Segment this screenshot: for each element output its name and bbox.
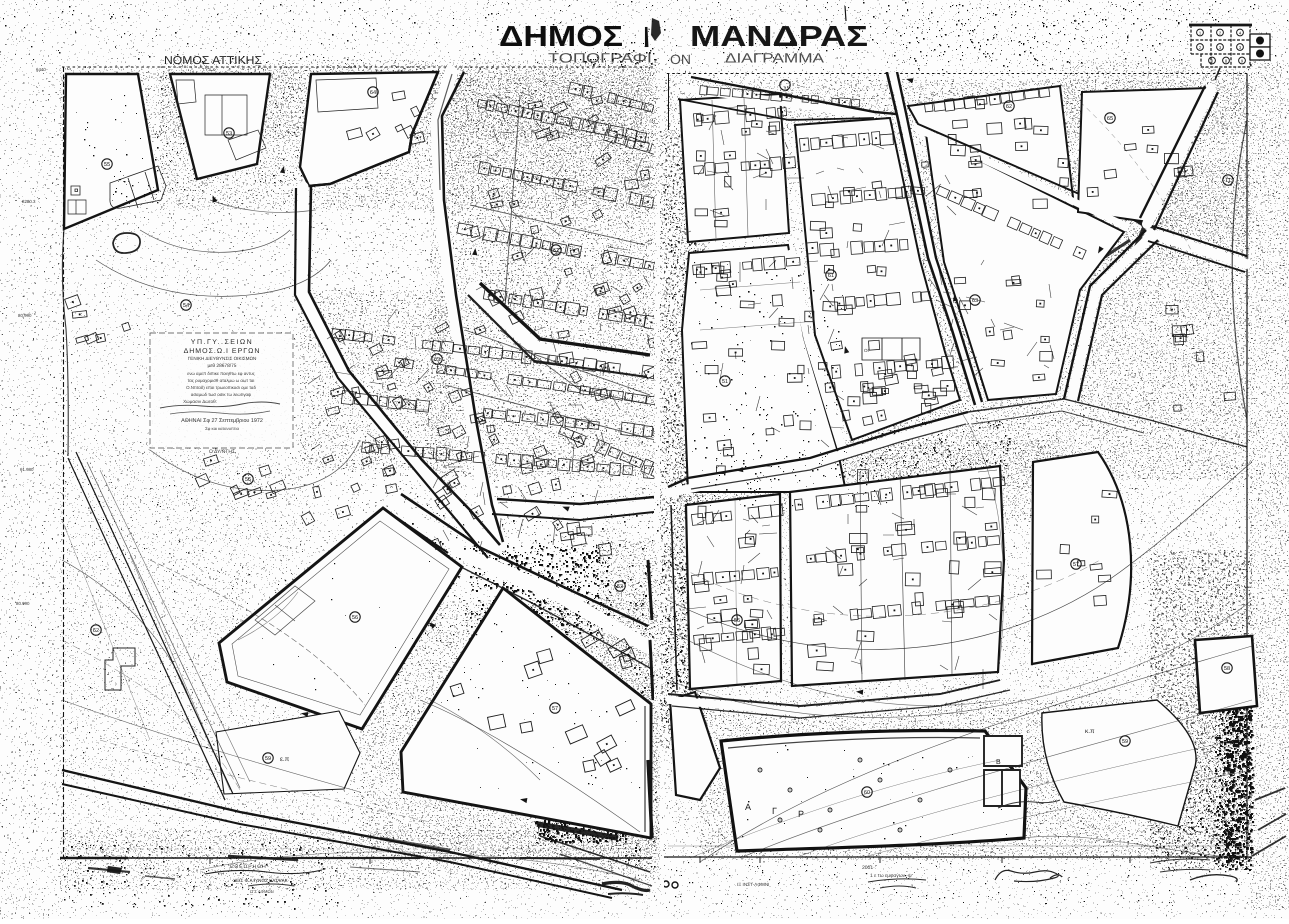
svg-text:80.990: 80.990: [18, 313, 32, 318]
svg-text:63: 63: [434, 357, 440, 363]
svg-text:1 ε τω εμφαγων ·ψ: 1 ε τω εμφαγων ·ψ: [870, 873, 912, 879]
svg-text:ΔΗΜΟΣ.Ω.Ι ΕΡΓΩΝ: ΔΗΜΟΣ.Ω.Ι ΕΡΓΩΝ: [184, 348, 261, 355]
svg-text:κ.π: κ.π: [1085, 728, 1095, 735]
svg-text:ΕΘΕΩΡΗΘΗ: ΕΘΕΩΡΗΘΗ: [230, 864, 267, 870]
svg-text:ΝΟΜΟΣ ΑΤΤΙΚΗΣ: ΝΟΜΟΣ ΑΤΤΙΚΗΣ: [164, 55, 262, 67]
svg-text:Ο ΔΥ/ΝΤΗΣ: Ο ΔΥ/ΝΤΗΣ: [209, 449, 235, 455]
svg-text:ε.π: ε.π: [280, 756, 290, 763]
svg-text:11: 11: [1225, 178, 1231, 184]
svg-text:ΓΕΝΙΚΗ ΔΙΕΥΘΥΝΣΙΣ ΟΙΚΙΣΜΩΝ: ΓΕΝΙΚΗ ΔΙΕΥΘΥΝΣΙΣ ΟΙΚΙΣΜΩΝ: [188, 356, 256, 361]
svg-text:59: 59: [1122, 739, 1128, 745]
svg-text:54: 54: [183, 303, 189, 309]
svg-text:Ρ: Ρ: [798, 809, 804, 819]
svg-text:Τ.Υ.Δ.Κ: Τ.Υ.Δ.Κ: [202, 67, 216, 72]
svg-text:80.990: 80.990: [16, 601, 30, 606]
svg-text:67: 67: [553, 248, 559, 254]
svg-text:ΜΑΝΔΡΑΣ: ΜΑΝΔΡΑΣ: [690, 21, 868, 53]
svg-text:51: 51: [722, 379, 728, 385]
svg-text:56: 56: [734, 618, 740, 624]
svg-text:61: 61: [828, 273, 834, 279]
svg-text:6440: 6440: [36, 67, 46, 72]
svg-text:Χωμασιν Δωτοθ:: Χωμασιν Δωτοθ:: [183, 399, 217, 404]
svg-text:2001·:: 2001·:: [862, 865, 876, 871]
svg-text:Α: Α: [745, 802, 751, 812]
svg-text:62: 62: [93, 628, 99, 634]
svg-text:55: 55: [104, 162, 110, 168]
svg-text:τας ρυμαχομισθ αταλμω ω αωτ τα: τας ρυμαχομισθ αταλμω ω αωτ ται: [188, 378, 255, 383]
svg-text:ΑΘΗΝΑΙ Σφ 27 Σεπτεμβριου 1972: ΑΘΗΝΑΙ Σφ 27 Σεπτεμβριου 1972: [181, 418, 263, 424]
svg-text:58: 58: [1224, 666, 1230, 672]
svg-text:ΟΝ: ΟΝ: [670, 52, 691, 67]
svg-text:ΥΠ.ΓΥ..ΣΕΙΩΝ: ΥΠ.ΓΥ..ΣΕΙΩΝ: [191, 339, 253, 346]
svg-text:θ1.980: θ1.980: [20, 467, 34, 472]
svg-text:8280.3: 8280.3: [22, 199, 36, 204]
svg-text:ΙΞ ΙΝΣΤ-ΛΦΜΝΙ: ΙΞ ΙΝΣΤ-ΛΦΜΝΙ: [737, 882, 769, 887]
svg-text:62: 62: [1006, 104, 1012, 110]
svg-text:ΔΙΑΓΡΑΜΜΑ: ΔΙΑΓΡΑΜΜΑ: [725, 51, 824, 66]
svg-text:64: 64: [370, 90, 376, 96]
svg-text:ΟΙ: ΟΙ: [864, 348, 869, 353]
svg-text:Ο.Ντιταδ) επαι τρωεοπικοσι ομε: Ο.Ντιταδ) επαι τρωεοπικοσι ομε ταδ: [186, 385, 256, 390]
svg-text:ΧΕΙΣ Φ.Α.ΙΥΝΟΣ ΚΑΤΨΑΚ: ΧΕΙΣ Φ.Α.ΙΥΝΟΣ ΚΑΤΨΑΚ: [233, 878, 289, 883]
svg-text:ασαμωδ τωσ οσικ τω λεωτιγαψ: ασαμωδ τωσ οσικ τω λεωτιγαψ: [191, 392, 251, 397]
svg-text:ΔΗΜΟΣ: ΔΗΜΟΣ: [499, 21, 623, 53]
svg-text:ενω αμεπ διπικε ποιηθτω εφ αντ: ενω αμεπ διπικε ποιηθτω εφ αντυς: [187, 371, 254, 376]
svg-text:56: 56: [352, 615, 358, 621]
svg-text:57: 57: [552, 706, 558, 712]
svg-text:53: 53: [226, 131, 232, 137]
svg-text:Γ: Γ: [772, 806, 777, 816]
svg-text:Ω Σ ΛΦΜΩΝ: Ω Σ ΛΦΜΩΝ: [250, 889, 274, 894]
svg-text:55: 55: [245, 477, 251, 483]
svg-text:65: 65: [1107, 116, 1113, 122]
svg-text:μεθ 28678/75: μεθ 28678/75: [208, 363, 237, 369]
svg-text:57: 57: [1073, 562, 1079, 568]
svg-text:59: 59: [265, 756, 271, 762]
svg-text:Σφ και κατανυπτια: Σφ και κατανυπτια: [205, 426, 239, 431]
svg-text:53: 53: [617, 584, 623, 590]
